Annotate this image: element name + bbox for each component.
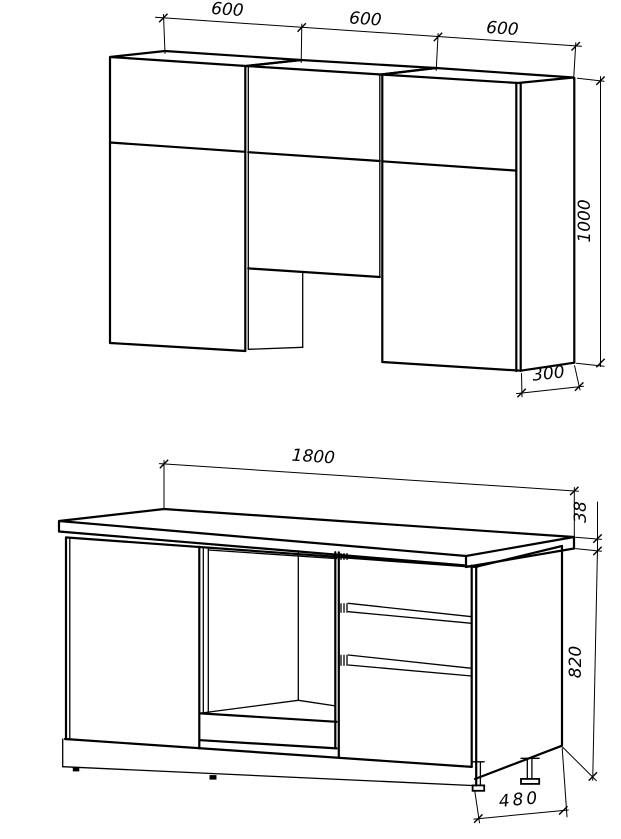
dim-wall-width-middle: 600 [348, 8, 382, 30]
base-side-panel [473, 546, 562, 791]
niche-rail-bottom-edge [201, 740, 337, 748]
countertop-top-face [59, 509, 574, 556]
niche-shelf-left-edge [202, 700, 299, 713]
wall-right-door-split [382, 161, 516, 170]
wall-middle-door-split [248, 152, 379, 161]
front-foot-middle [210, 775, 217, 780]
wall-cabinet-bottoms [110, 268, 574, 370]
wall-left-door-split [110, 143, 245, 152]
dim-wall-width-right: 600 [485, 18, 519, 40]
wall-right-bottom [382, 362, 520, 371]
countertop-front-bottom-edge [59, 532, 466, 566]
dim-base-depth: 480 [498, 788, 541, 812]
wall-exposed-panel-bottom [248, 347, 302, 349]
dim-line [517, 386, 584, 393]
base-cabinets-view: 1800 38 820 480 [59, 446, 602, 823]
extension-line [563, 748, 596, 781]
countertop-thickness-dimension: 38 [571, 501, 602, 555]
wall-left-bottom [110, 343, 245, 351]
wall-height-dimension: 1000 [575, 77, 605, 368]
side-bottom-edge [475, 746, 562, 779]
drawing-canvas: 600 600 600 1000 300 [0, 0, 621, 839]
wall-middle-bottom [248, 268, 379, 277]
drawer-stack [341, 554, 476, 786]
dim-wall-height: 1000 [575, 199, 595, 242]
drawer-gap-1-top [348, 603, 471, 616]
wall-door-divisions [110, 143, 516, 171]
wall-right-top-face [381, 68, 574, 83]
wall-cabinet-edges [110, 57, 574, 371]
wall-cabinet-top-faces [110, 51, 574, 83]
dim-base-height: 820 [566, 646, 586, 678]
dim-countertop-thickness: 38 [571, 501, 591, 523]
dim-wall-width-left: 600 [210, 0, 244, 21]
leg-rear [521, 758, 539, 784]
front-foot-left [73, 767, 80, 772]
extension-line [164, 15, 166, 54]
wall-depth-dimension: 300 [517, 362, 584, 397]
dim-line [593, 553, 598, 780]
dim-line [474, 810, 569, 819]
side-top-edge [477, 546, 562, 567]
drawer-gap-1-bottom [348, 612, 471, 624]
extension-line [301, 24, 302, 63]
plinth-bottom-edge [63, 767, 475, 786]
wall-cabinets-view: 600 600 600 1000 300 [110, 0, 605, 397]
niche-shelf-back-edge [298, 700, 335, 706]
base-carcass [63, 537, 477, 785]
wall-width-dimension-chain: 600 600 600 [156, 0, 582, 80]
dim-base-width: 1800 [291, 446, 335, 469]
base-depth-dimension: 480 [474, 748, 569, 823]
drawer-runner-hatch-middle [341, 604, 347, 612]
base-height-dimension: 820 [563, 553, 597, 781]
countertop [59, 509, 574, 567]
technical-drawing: 600 600 600 1000 300 [0, 0, 621, 839]
dim-wall-depth: 300 [531, 362, 565, 385]
dim-line [160, 464, 579, 492]
drawer-runner-hatch-bottom [341, 655, 347, 665]
niche-shelf-front-edge [201, 713, 337, 721]
